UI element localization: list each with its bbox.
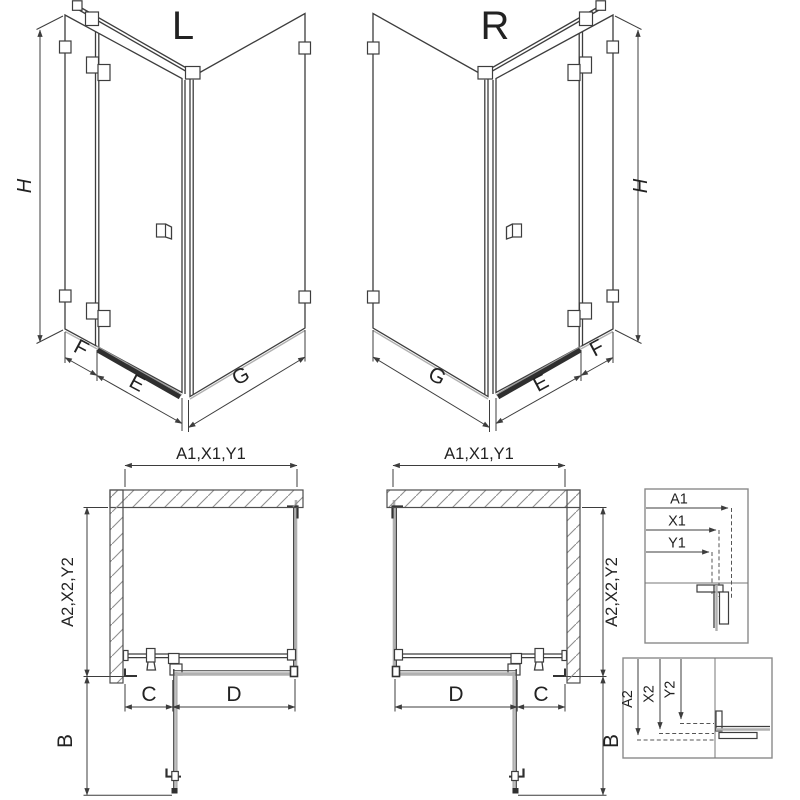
dim-label-depth-plan-right: A2,X2,Y2: [603, 557, 621, 627]
dim-label-f-right: F: [586, 335, 608, 361]
variant-label-right: R: [481, 4, 510, 48]
shower-enclosure-technical-drawing: L H F E G R H F E G A1,X1,Y1 A2,X2,Y2 C …: [0, 0, 800, 800]
dim-label-d-right: D: [448, 683, 463, 706]
detail-label-a1: A1: [670, 492, 688, 508]
detail-label-y2: Y2: [663, 681, 679, 699]
dim-label-height-left: H: [14, 178, 36, 193]
detail-box-depth: [623, 658, 772, 758]
detail-label-a2: A2: [620, 690, 636, 708]
variant-label-left: L: [172, 4, 194, 48]
wall-top-left-plan: [110, 490, 303, 508]
iso-dimension-lines: [37, 16, 306, 432]
dim-label-depth-plan-left: A2,X2,Y2: [59, 557, 77, 627]
dim-label-d-left: D: [226, 683, 241, 706]
dim-label-g-left: G: [228, 362, 253, 390]
diagram-svg: L H F E G R H F E G A1,X1,Y1 A2,X2,Y2 C …: [0, 0, 800, 800]
detail-label-x1: X1: [668, 514, 686, 530]
detail-label-y1: Y1: [668, 536, 686, 552]
door-handle-knob: [157, 224, 172, 239]
wall-side-left-plan: [110, 490, 123, 683]
dim-label-c-left: C: [141, 683, 156, 706]
detail-label-x2: X2: [642, 685, 658, 703]
dim-label-height-right: H: [630, 178, 652, 193]
plan-support-bar: [124, 649, 296, 671]
dim-label-width-plan-left: A1,X1,Y1: [176, 445, 246, 463]
detail-box-width: [645, 489, 748, 643]
dim-label-g-right: G: [424, 362, 449, 390]
iso-view-left: [37, 1, 311, 432]
dim-label-b-right: B: [600, 734, 623, 748]
dim-label-e-left: E: [125, 370, 148, 397]
dim-label-b-left: B: [54, 734, 77, 748]
dim-label-e-right: E: [529, 370, 552, 397]
wall-top-right-plan: [387, 490, 580, 508]
dim-label-f-left: F: [70, 335, 92, 361]
iso-view-right: [368, 1, 642, 432]
side-wall-panel: [190, 14, 305, 400]
wall-side-right-plan: [567, 490, 580, 683]
dim-label-width-plan-right: A1,X1,Y1: [444, 445, 514, 463]
dim-label-c-right: C: [533, 683, 548, 706]
